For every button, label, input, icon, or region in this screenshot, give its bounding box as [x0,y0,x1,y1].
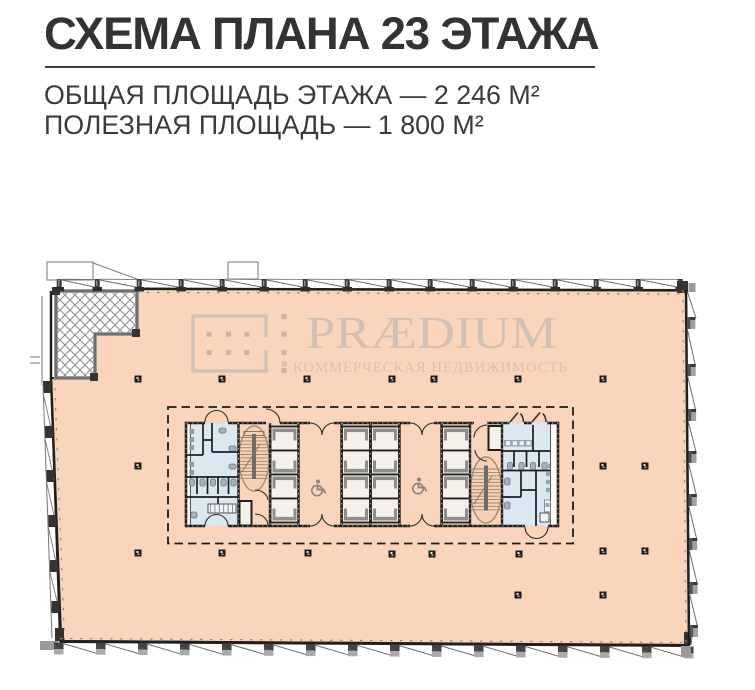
svg-text:КОММЕРЧЕСКАЯ НЕДВИЖИМОСТЬ: КОММЕРЧЕСКАЯ НЕДВИЖИМОСТЬ [293,360,568,376]
svg-text:PRÆDIUM: PRÆDIUM [306,308,557,358]
